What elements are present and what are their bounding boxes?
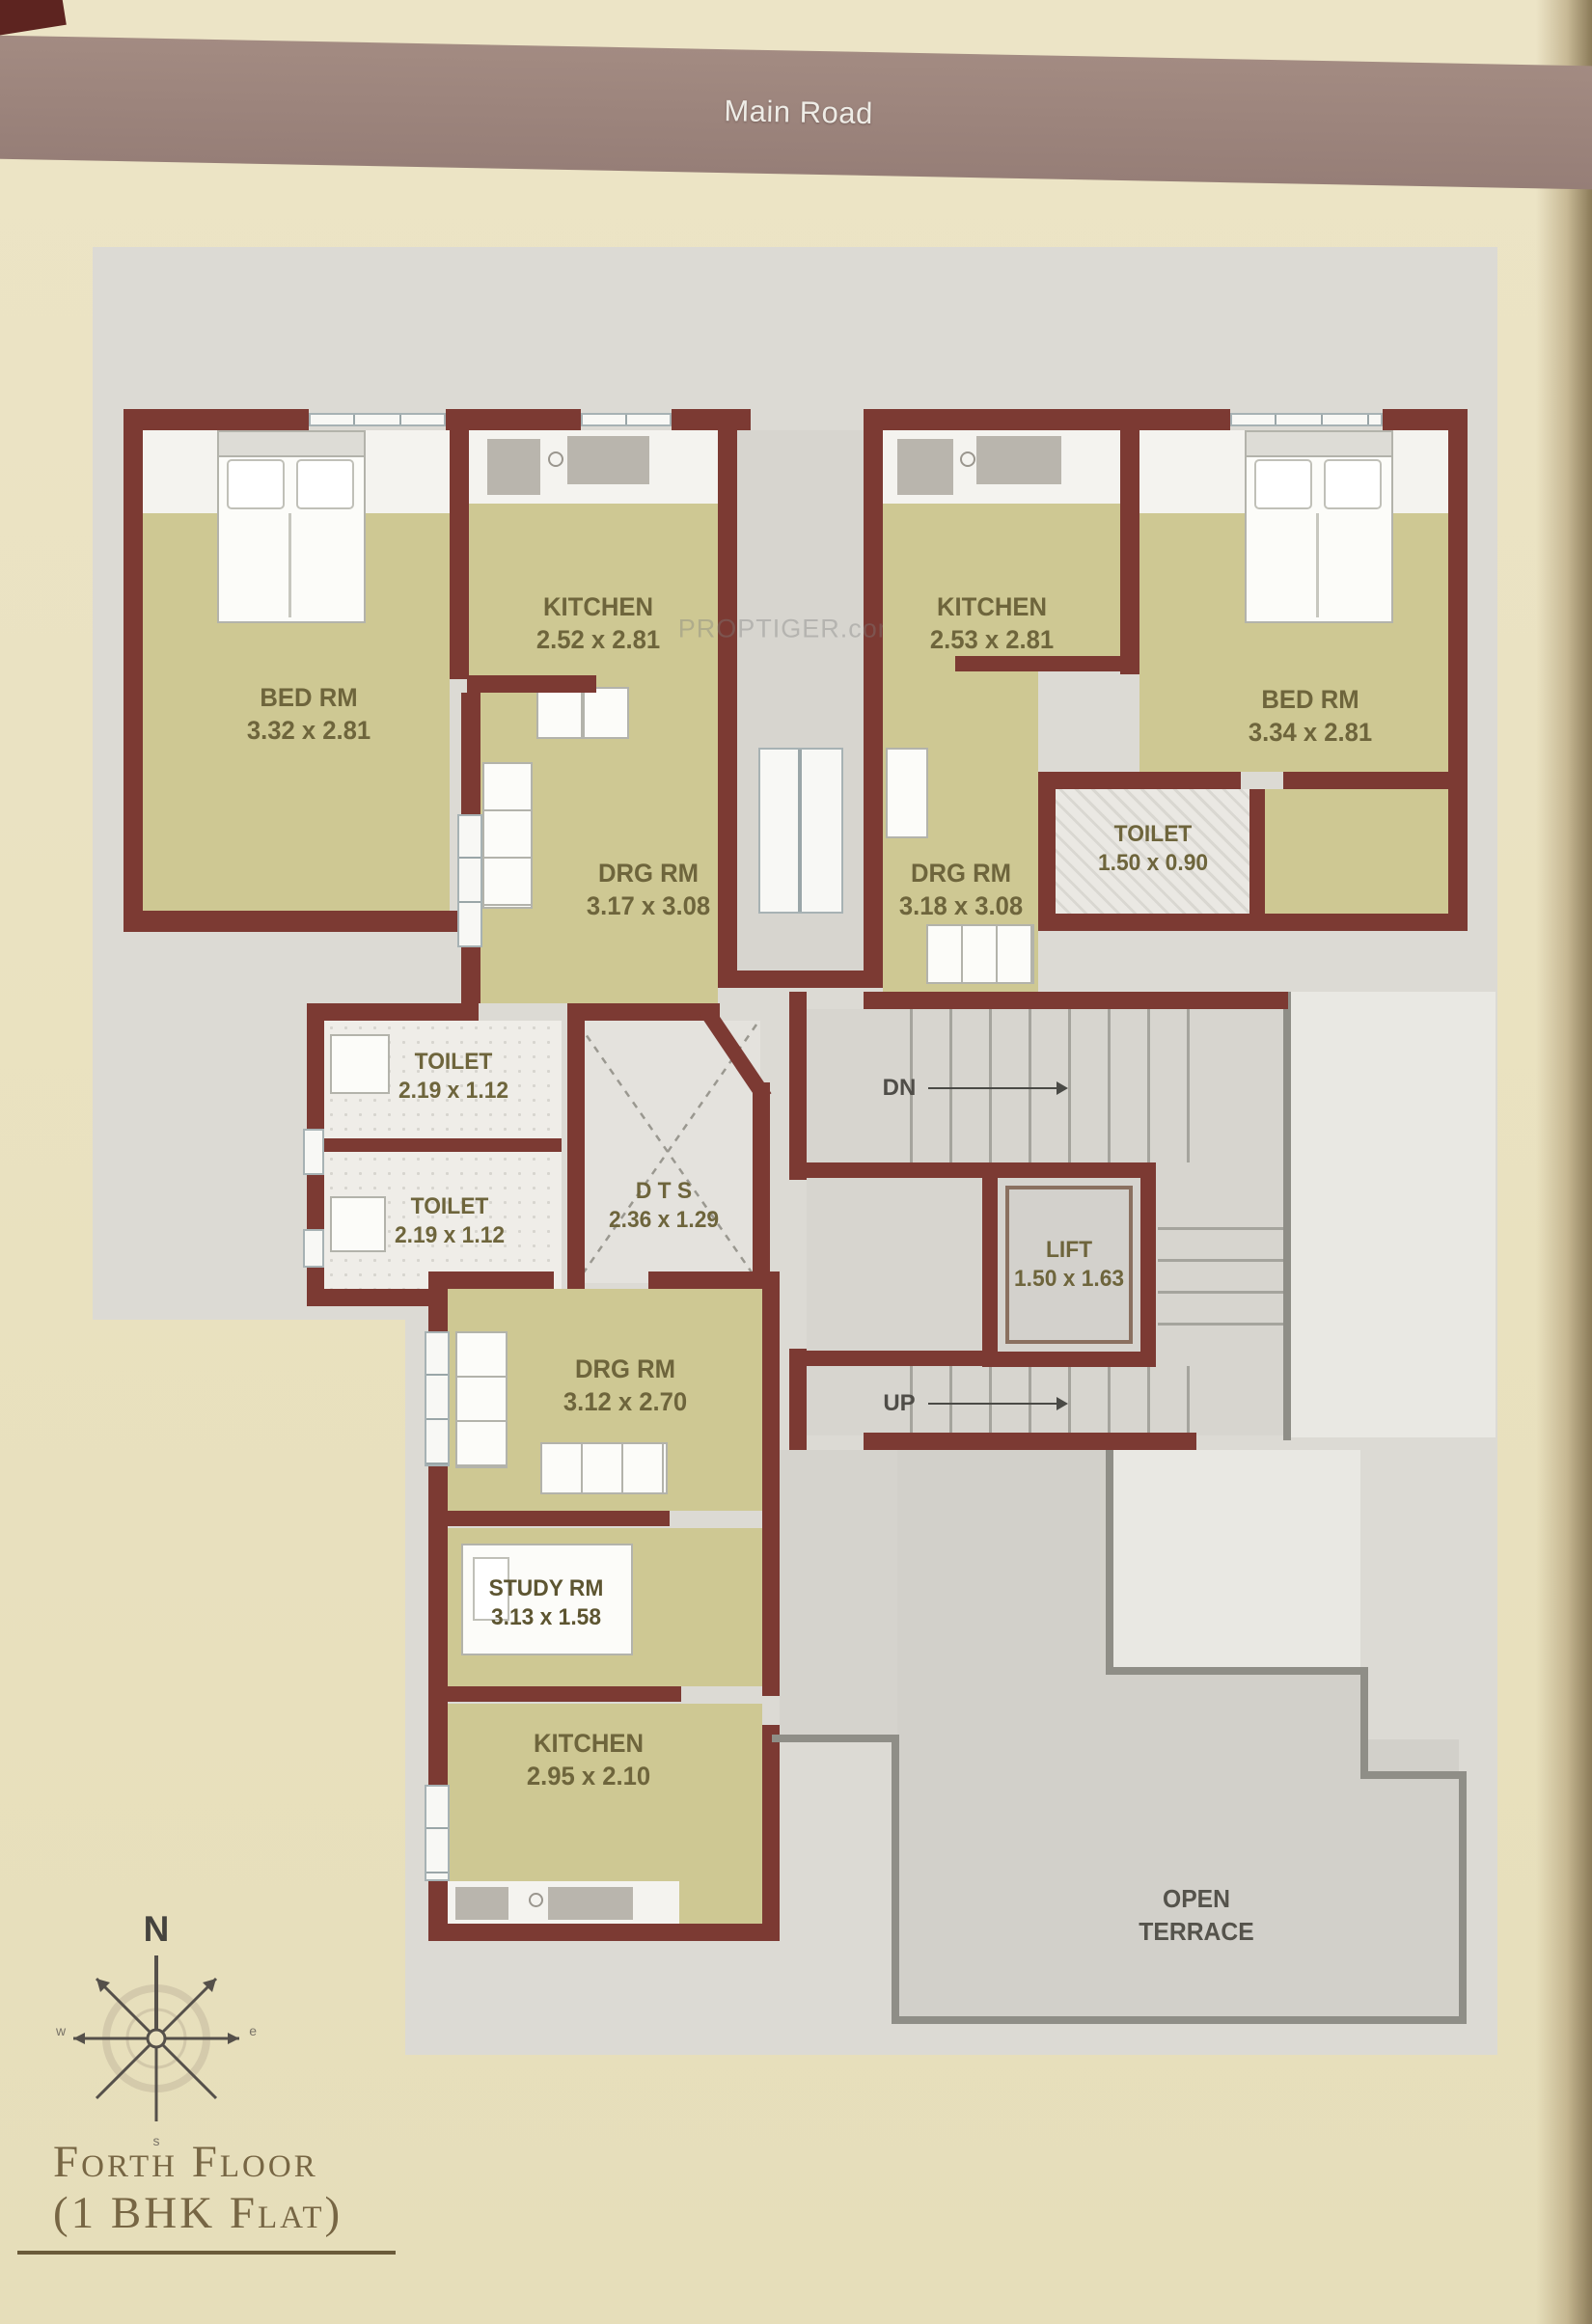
bed-headboard — [1245, 430, 1393, 457]
room-label-dts: D T S 2.36 x 1.29 — [609, 1177, 719, 1235]
room-label-bed-left: BED RM 3.32 x 2.81 — [247, 681, 371, 747]
stairs-up-label: UP — [883, 1390, 915, 1417]
wall — [762, 1725, 780, 1941]
bed-fold-line — [1316, 513, 1319, 617]
wall — [955, 656, 1139, 671]
stairs-up-arrow-icon — [928, 1403, 1063, 1405]
wall — [1283, 772, 1468, 789]
tap-icon — [960, 451, 975, 467]
room-label-lift: LIFT 1.50 x 1.63 — [1014, 1236, 1124, 1294]
wall — [864, 409, 883, 988]
room-label-toilet-upper: TOILET 2.19 x 1.12 — [398, 1048, 508, 1106]
stairs-down-label: DN — [883, 1075, 917, 1102]
wall — [1038, 772, 1241, 789]
bed-fold-line — [288, 513, 291, 617]
plan-title-line2: (1 BHK Flat) — [53, 2188, 343, 2239]
wall — [718, 971, 883, 988]
plan-title-line1: Forth Floor — [53, 2137, 343, 2188]
window — [1230, 413, 1383, 426]
lift-car: LIFT 1.50 x 1.63 — [1005, 1186, 1133, 1344]
terrace-border — [1106, 1667, 1368, 1675]
sink-icon — [567, 436, 649, 484]
wall — [324, 1138, 562, 1152]
scan-corner-mark — [0, 0, 67, 37]
bed-headboard — [217, 430, 366, 457]
wall — [428, 1271, 554, 1289]
sofa-icon — [926, 924, 1034, 984]
title-underline — [17, 2251, 396, 2255]
room-label-terrace: OPEN TERRACE — [1139, 1882, 1253, 1948]
terrace-border — [892, 1735, 899, 2024]
wall — [672, 409, 751, 430]
wall — [567, 1003, 720, 1021]
terrace-floor — [897, 1739, 1459, 2017]
room-label-toilet-lower: TOILET 2.19 x 1.12 — [395, 1192, 505, 1250]
sofa-icon — [540, 1442, 668, 1494]
pillow-icon — [227, 459, 285, 509]
lift-shaft: LIFT 1.50 x 1.63 — [982, 1162, 1156, 1367]
wall — [1038, 914, 1468, 931]
sofa-icon — [886, 748, 928, 838]
wall — [461, 947, 480, 1003]
floor-area-right-of-stairs — [1291, 992, 1496, 1437]
terrace-border — [1360, 1771, 1467, 1779]
wall — [1249, 789, 1265, 931]
room-label-drg-left: DRG RM 3.17 x 3.08 — [587, 857, 710, 922]
wall — [461, 693, 480, 814]
wall — [807, 1162, 985, 1178]
main-road-label: Main Road — [724, 94, 873, 131]
wall — [789, 1349, 807, 1450]
terrace-floor — [897, 1450, 1106, 1676]
stairs-down-arrow-icon — [928, 1087, 1063, 1089]
page-edge-shadow — [1536, 0, 1592, 2324]
window — [303, 1129, 324, 1175]
room-label-kitchen-right: KITCHEN 2.53 x 2.81 — [930, 590, 1054, 656]
window — [303, 1229, 324, 1268]
wall — [467, 675, 596, 693]
pillow-icon — [296, 459, 354, 509]
bed-icon — [217, 430, 366, 623]
sofa-icon — [482, 762, 533, 909]
room-label-kitchen-left: KITCHEN 2.52 x 2.81 — [536, 590, 660, 656]
stair-flight-side — [1158, 1198, 1283, 1351]
compass: N w e s — [60, 1915, 253, 2146]
window — [425, 1331, 450, 1466]
wall — [718, 409, 737, 988]
wall — [450, 409, 469, 679]
pillow-icon — [1254, 459, 1312, 509]
room-label-kitchen-lower: KITCHEN 2.95 x 2.10 — [527, 1727, 650, 1792]
shaft-window — [758, 748, 843, 914]
washbasin-icon — [330, 1034, 390, 1094]
wall — [567, 1003, 585, 1306]
bedroom-right-lobby-floor — [1265, 789, 1448, 914]
cabinet-icon — [536, 687, 583, 739]
pillow-icon — [1324, 459, 1382, 509]
stove-icon — [897, 439, 953, 495]
sink-icon — [548, 1887, 633, 1920]
wall — [1448, 409, 1468, 930]
compass-rose-icon — [60, 1942, 253, 2135]
wall — [307, 1175, 324, 1229]
wall — [1038, 772, 1056, 931]
wall — [124, 911, 467, 932]
sink-icon — [976, 436, 1061, 484]
wall — [1120, 409, 1139, 674]
wall — [124, 409, 143, 932]
stair-flight-lower — [873, 1366, 1192, 1435]
wall — [807, 1351, 985, 1366]
wall — [124, 409, 309, 430]
wall — [648, 1271, 780, 1289]
window — [581, 413, 672, 426]
stair-flight-upper — [873, 1009, 1192, 1162]
wall — [883, 409, 1230, 430]
tap-icon — [529, 1893, 543, 1907]
terrace-border — [1360, 1667, 1368, 1779]
bed-icon — [1245, 430, 1393, 623]
room-label-bed-right: BED RM 3.34 x 2.81 — [1249, 683, 1372, 749]
stove-icon — [455, 1887, 508, 1920]
wall — [428, 1511, 670, 1526]
room-label-drg-right: DRG RM 3.18 x 3.08 — [899, 857, 1023, 922]
room-label-study: STUDY RM 3.13 x 1.58 — [489, 1574, 604, 1632]
wall — [864, 992, 1288, 1009]
wall — [307, 1003, 324, 1129]
plan-title: Forth Floor (1 BHK Flat) — [53, 2137, 343, 2239]
main-road-band: Main Road — [0, 35, 1592, 190]
washbasin-icon — [330, 1196, 386, 1252]
window — [425, 1785, 450, 1881]
room-label-toilet-right: TOILET 1.50 x 0.90 — [1098, 820, 1208, 878]
cabinet-icon — [583, 687, 629, 739]
terrace-border — [1459, 1771, 1467, 2024]
window — [457, 814, 482, 947]
room-label-drg-lower: DRG RM 3.12 x 2.70 — [563, 1353, 687, 1418]
terrace-border — [772, 1735, 899, 1742]
floor-plan-page: Main Road PROPTIGER.com — [0, 0, 1592, 2324]
watermark-text: PROPTIGER.com — [678, 615, 901, 644]
terrace-notch — [1113, 1450, 1360, 1667]
stair-block-edge — [1283, 992, 1291, 1440]
wall — [428, 1686, 681, 1702]
wall — [789, 992, 807, 1180]
terrace-border — [892, 2016, 1467, 2024]
tap-icon — [548, 451, 563, 467]
wall — [428, 1924, 780, 1941]
window — [309, 413, 446, 426]
wall — [762, 1271, 780, 1696]
stove-icon — [487, 439, 540, 495]
wall — [864, 1433, 1196, 1450]
terrace-floor — [897, 1674, 1360, 1743]
terrace-border — [1106, 1450, 1113, 1674]
wall — [313, 1003, 479, 1021]
sofa-icon — [455, 1331, 508, 1468]
